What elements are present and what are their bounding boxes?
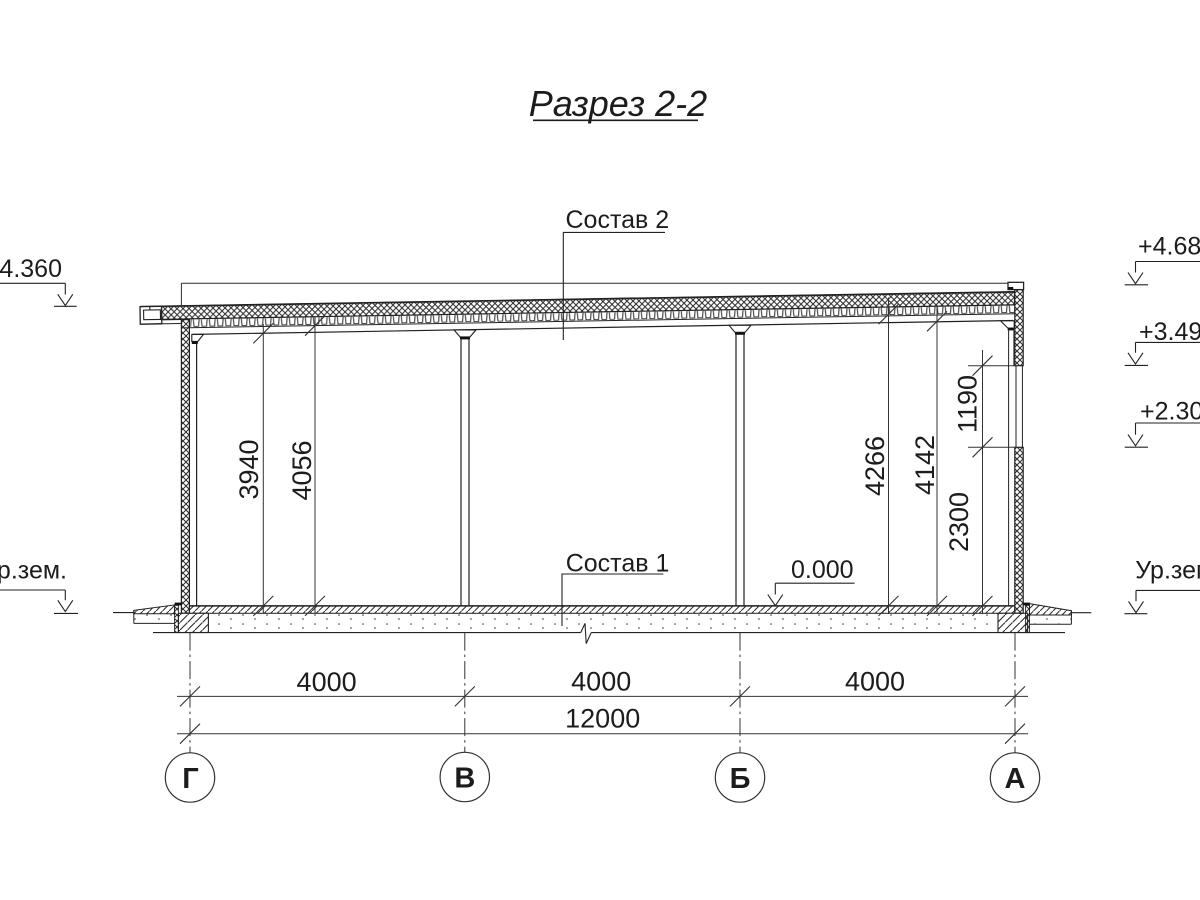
svg-text:Разрез 2-2: Разрез 2-2 <box>529 83 707 124</box>
svg-text:2300: 2300 <box>944 492 974 552</box>
svg-text:+3.49: +3.49 <box>1139 318 1200 346</box>
svg-text:4142: 4142 <box>910 435 940 495</box>
svg-text:4000: 4000 <box>297 667 357 697</box>
svg-text:А: А <box>1005 763 1026 795</box>
svg-text:4266: 4266 <box>860 436 890 496</box>
svg-text:4056: 4056 <box>287 440 317 500</box>
svg-text:Состав 2: Состав 2 <box>566 206 670 234</box>
svg-text:12000: 12000 <box>565 703 640 733</box>
svg-text:р.зем.: р.зем. <box>0 557 67 585</box>
svg-text:Ур.зем.: Ур.зем. <box>1135 557 1200 585</box>
svg-text:Б: Б <box>730 763 751 795</box>
svg-text:В: В <box>454 762 475 794</box>
svg-text:0.000: 0.000 <box>791 556 854 584</box>
svg-text:3940: 3940 <box>234 439 264 499</box>
svg-text:4000: 4000 <box>571 667 631 697</box>
svg-text:Г: Г <box>182 763 198 795</box>
svg-text:+4.360: +4.360 <box>0 255 62 283</box>
svg-text:1190: 1190 <box>953 375 983 433</box>
svg-text:+2.30: +2.30 <box>1140 398 1200 426</box>
svg-text:4000: 4000 <box>845 667 905 697</box>
svg-text:Состав 1: Состав 1 <box>566 550 670 578</box>
svg-text:+4.68: +4.68 <box>1138 233 1200 261</box>
